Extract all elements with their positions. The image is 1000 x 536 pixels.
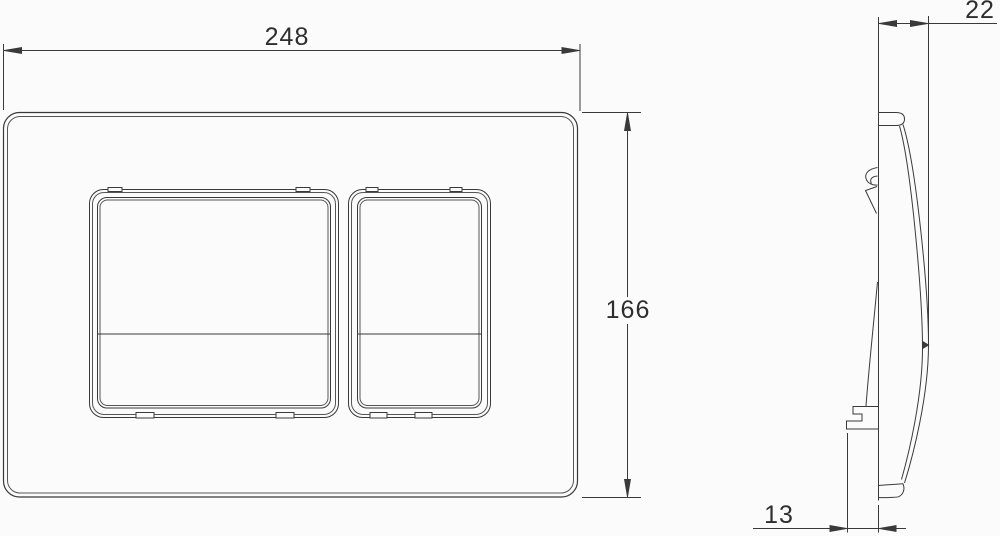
button-notches: [108, 188, 462, 419]
small-button-ring-inner-line: [352, 193, 488, 415]
side-tangent-mark: [923, 342, 929, 348]
button-notch: [296, 188, 310, 192]
button-notch: [415, 413, 432, 419]
side-spring-clip-inner-line: [871, 176, 878, 184]
side-view: [847, 17, 929, 533]
button-notch: [450, 188, 462, 192]
arrowhead-right: [911, 21, 928, 27]
button-notch: [276, 413, 294, 419]
side-spring-clip-leg: [866, 187, 878, 214]
large-button-ring-inner-line: [93, 193, 336, 415]
button-notch: [136, 413, 154, 419]
drawing-linework: [0, 0, 1000, 536]
arrowhead-up: [625, 114, 631, 131]
button-notch: [366, 188, 378, 192]
button-notch: [370, 413, 387, 419]
small-button: [358, 198, 482, 409]
arrowhead-left: [5, 48, 22, 54]
arrowhead-down: [625, 480, 631, 497]
dimension-label-height: 166: [600, 297, 656, 324]
arrowhead-left: [880, 21, 897, 27]
arrowhead-inward-right: [830, 526, 847, 532]
side-top-cap: [878, 113, 905, 126]
front-view: [4, 113, 578, 498]
dimension-label-offset: 13: [759, 503, 799, 528]
dimension-label-width: 248: [240, 25, 334, 50]
dimension-label-depth: 22: [960, 0, 1000, 23]
side-bottom-cap: [878, 484, 904, 498]
large-button-ring: [90, 190, 339, 418]
side-face-curve-outer: [903, 125, 929, 484]
dimension-22: [879, 16, 998, 344]
large-button-inner-line: [100, 200, 328, 406]
small-button-ring: [349, 190, 491, 418]
side-support-curve: [866, 282, 878, 406]
arrowhead-right: [562, 48, 579, 54]
button-notch: [108, 188, 122, 192]
large-button: [98, 198, 331, 409]
side-bottom-bracket: [847, 407, 879, 430]
arrowhead-inward-left: [880, 526, 897, 532]
flush-plate-technical-drawing: 248 166 22 13: [0, 0, 1000, 536]
small-button-inner-line: [360, 200, 479, 406]
dimension-248: [4, 44, 581, 111]
